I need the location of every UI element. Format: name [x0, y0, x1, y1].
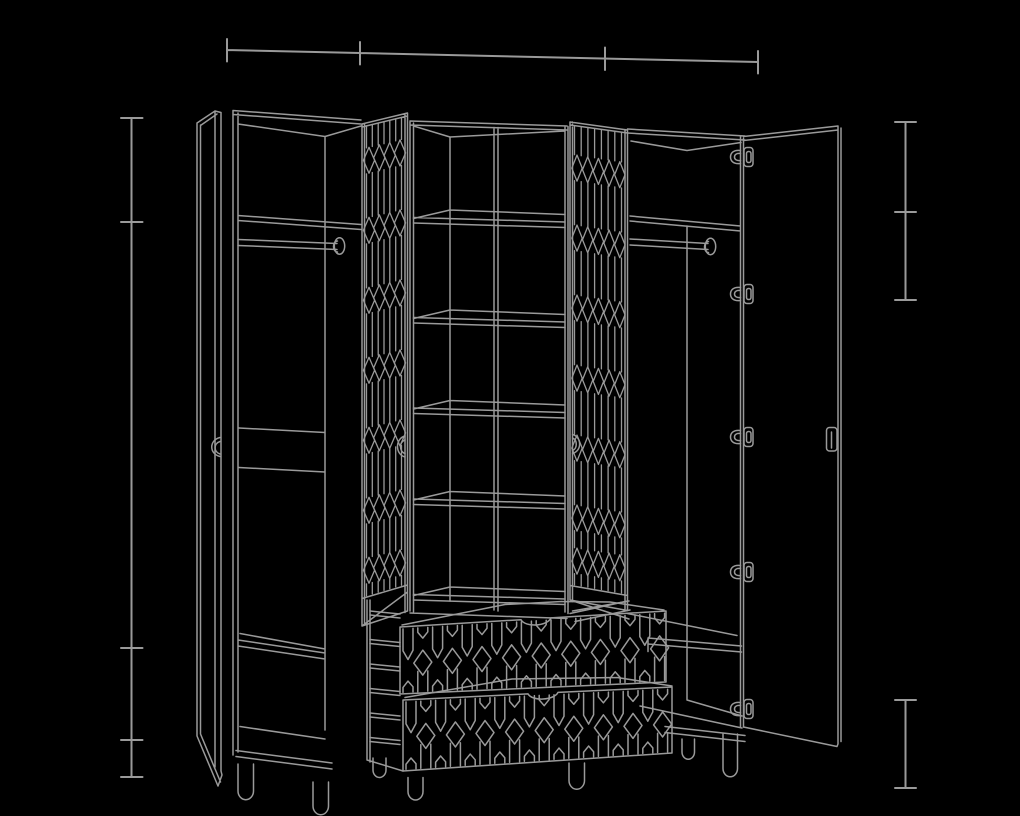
hinge-icon-3	[731, 428, 754, 447]
hanging-rail-right	[630, 238, 716, 254]
left-compartment	[233, 111, 361, 770]
hinge-icon-4	[731, 563, 754, 582]
dimension-line-left	[121, 118, 143, 777]
leg-3	[373, 758, 386, 778]
drawer-upper	[400, 611, 669, 696]
drawing-root: Wardrobe technical line drawing	[0, 0, 1020, 816]
legs	[238, 734, 738, 815]
hinge-icon-1	[731, 148, 754, 167]
center-shelf-unit	[410, 121, 568, 619]
leg-2	[313, 782, 329, 815]
dimension-line-right-lower	[895, 700, 916, 788]
shelves	[414, 210, 566, 605]
dimension-line-right-upper	[895, 122, 916, 300]
wardrobe-line-drawing: Wardrobe technical line drawing	[0, 0, 1020, 816]
right-door-handle-icon	[827, 428, 838, 452]
honeycomb-pattern-lower	[406, 689, 672, 769]
left-door-handle-icon	[212, 438, 220, 457]
dimension-line-top	[227, 39, 758, 74]
leg-5	[569, 763, 585, 789]
left-door	[197, 111, 222, 786]
right-door	[731, 126, 842, 747]
door-hinges	[731, 148, 754, 719]
lattice-door-left	[362, 113, 408, 626]
lattice-door-right	[570, 122, 629, 619]
leg-1	[238, 764, 254, 800]
drawer-lower	[403, 687, 672, 771]
hinge-icon-2	[731, 285, 754, 304]
hanging-rail-left	[238, 238, 345, 254]
leg-4	[408, 778, 423, 801]
leg-6	[682, 739, 695, 759]
right-compartment	[628, 129, 746, 742]
